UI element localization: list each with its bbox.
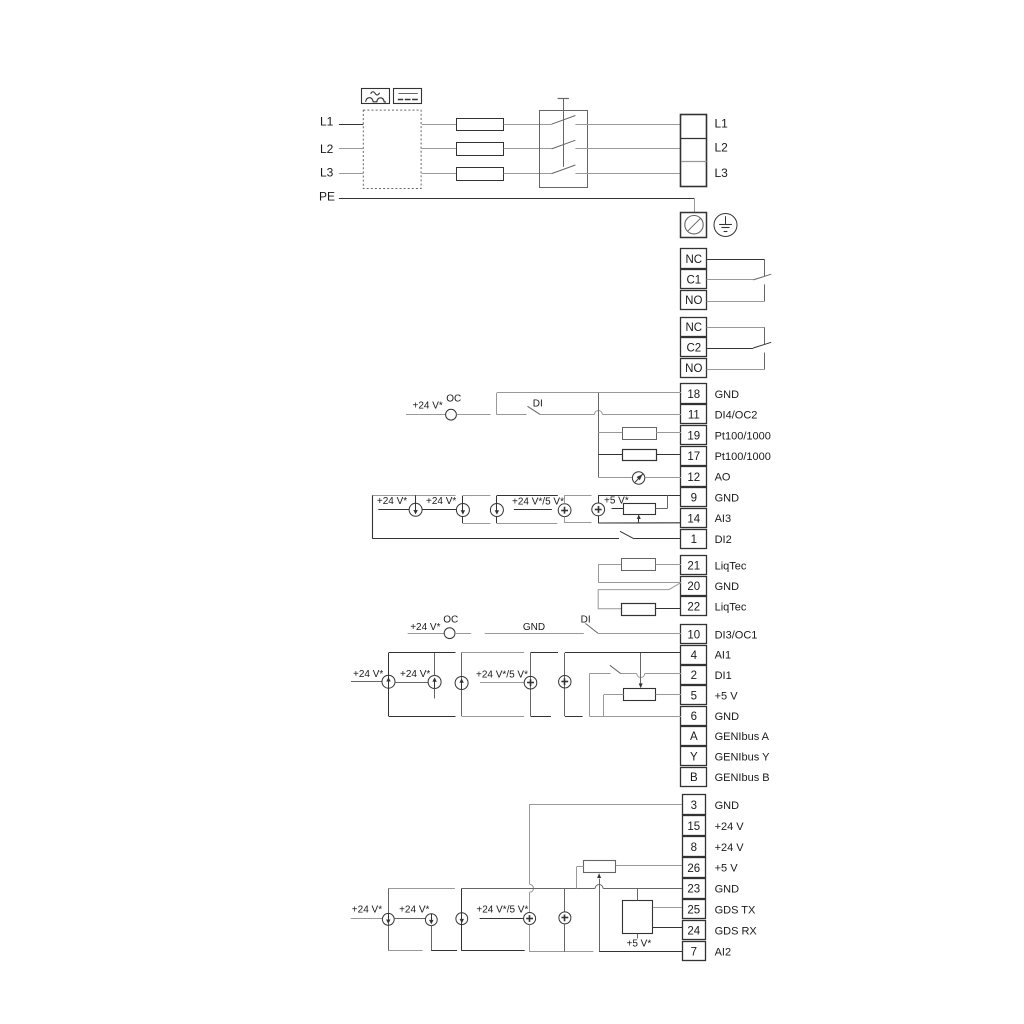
- svg-text:3: 3: [691, 800, 697, 812]
- svg-text:GDS RX: GDS RX: [715, 925, 758, 937]
- svg-text:DI4/OC2: DI4/OC2: [715, 410, 758, 422]
- svg-text:DI3/OC1: DI3/OC1: [715, 630, 758, 642]
- svg-text:NO: NO: [685, 295, 702, 307]
- svg-text:22: 22: [687, 602, 700, 614]
- svg-text:GENIbus B: GENIbus B: [715, 772, 770, 784]
- svg-text:C1: C1: [686, 275, 701, 287]
- svg-text:LiqTec: LiqTec: [715, 601, 747, 613]
- svg-text:GENIbus A: GENIbus A: [715, 731, 770, 743]
- svg-text:GND: GND: [715, 492, 740, 504]
- svg-text:+24 V*: +24 V*: [377, 496, 407, 507]
- svg-text:AI2: AI2: [715, 946, 732, 958]
- svg-text:L3: L3: [320, 166, 334, 180]
- svg-text:23: 23: [687, 884, 700, 896]
- svg-text:24: 24: [687, 925, 700, 937]
- svg-text:14: 14: [687, 513, 700, 525]
- svg-text:+24 V*: +24 V*: [426, 496, 456, 507]
- svg-text:17: 17: [687, 451, 700, 463]
- svg-text:7: 7: [691, 946, 697, 958]
- svg-text:15: 15: [687, 821, 700, 833]
- svg-text:Y: Y: [690, 752, 698, 764]
- svg-text:+24 V: +24 V: [715, 821, 745, 833]
- svg-text:+24 V*/5 V*: +24 V*/5 V*: [476, 669, 528, 680]
- svg-text:L2: L2: [715, 141, 729, 155]
- svg-text:NC: NC: [685, 254, 702, 266]
- svg-text:GND: GND: [715, 711, 740, 723]
- svg-text:+24 V*: +24 V*: [410, 622, 440, 633]
- svg-text:+5 V*: +5 V*: [627, 939, 652, 950]
- svg-text:NO: NO: [685, 363, 702, 375]
- svg-text:GENIbus Y: GENIbus Y: [715, 751, 770, 763]
- svg-text:8: 8: [691, 842, 697, 854]
- svg-text:4: 4: [691, 650, 698, 662]
- svg-text:12: 12: [687, 472, 700, 484]
- svg-text:+24 V*/5 V*: +24 V*/5 V*: [512, 497, 564, 508]
- svg-text:20: 20: [687, 581, 700, 593]
- svg-text:DI2: DI2: [715, 534, 732, 546]
- svg-text:OC: OC: [446, 394, 461, 405]
- svg-text:A: A: [690, 731, 698, 743]
- svg-text:GDS TX: GDS TX: [715, 904, 756, 916]
- svg-text:5: 5: [691, 691, 697, 703]
- svg-text:LiqTec: LiqTec: [715, 560, 747, 572]
- svg-text:21: 21: [687, 561, 700, 573]
- svg-text:10: 10: [687, 630, 700, 642]
- svg-text:GND: GND: [523, 622, 545, 633]
- svg-text:GND: GND: [715, 884, 740, 896]
- svg-text:19: 19: [687, 430, 700, 442]
- svg-text:+5 V*: +5 V*: [604, 496, 629, 507]
- svg-text:18: 18: [687, 389, 700, 401]
- svg-text:1: 1: [691, 534, 697, 546]
- svg-text:OC: OC: [443, 614, 458, 625]
- svg-text:+24 V*: +24 V*: [353, 669, 383, 680]
- svg-text:11: 11: [688, 410, 700, 422]
- svg-text:NC: NC: [685, 322, 702, 334]
- svg-text:DI1: DI1: [715, 670, 732, 682]
- svg-text:L1: L1: [320, 115, 334, 129]
- svg-text:L2: L2: [320, 142, 334, 156]
- svg-text:Pt100/1000: Pt100/1000: [715, 430, 771, 442]
- svg-text:L3: L3: [715, 166, 729, 180]
- svg-text:Pt100/1000: Pt100/1000: [715, 451, 771, 463]
- svg-text:DI: DI: [533, 398, 543, 409]
- svg-text:6: 6: [691, 711, 697, 723]
- svg-text:+24 V: +24 V: [715, 842, 745, 854]
- svg-text:2: 2: [691, 670, 697, 682]
- svg-text:+24 V*/5 V*: +24 V*/5 V*: [476, 904, 528, 915]
- svg-text:+24 V*: +24 V*: [399, 904, 429, 915]
- svg-text:GND: GND: [715, 800, 740, 812]
- svg-text:PE: PE: [319, 190, 335, 204]
- svg-text:+24 V*: +24 V*: [352, 904, 382, 915]
- svg-text:+5 V: +5 V: [715, 690, 739, 702]
- svg-text:9: 9: [691, 493, 697, 505]
- svg-text:+24 V*: +24 V*: [413, 400, 443, 411]
- svg-text:GND: GND: [715, 581, 740, 593]
- svg-text:AO: AO: [715, 472, 731, 484]
- svg-text:26: 26: [687, 863, 700, 875]
- svg-text:25: 25: [687, 905, 700, 917]
- svg-text:B: B: [690, 772, 698, 784]
- svg-text:GND: GND: [715, 389, 740, 401]
- svg-text:+5 V: +5 V: [715, 863, 739, 875]
- svg-text:+24 V*: +24 V*: [400, 669, 430, 680]
- svg-text:L1: L1: [715, 116, 729, 130]
- svg-text:AI1: AI1: [715, 650, 732, 662]
- svg-text:AI3: AI3: [715, 513, 732, 525]
- svg-text:C2: C2: [686, 343, 701, 355]
